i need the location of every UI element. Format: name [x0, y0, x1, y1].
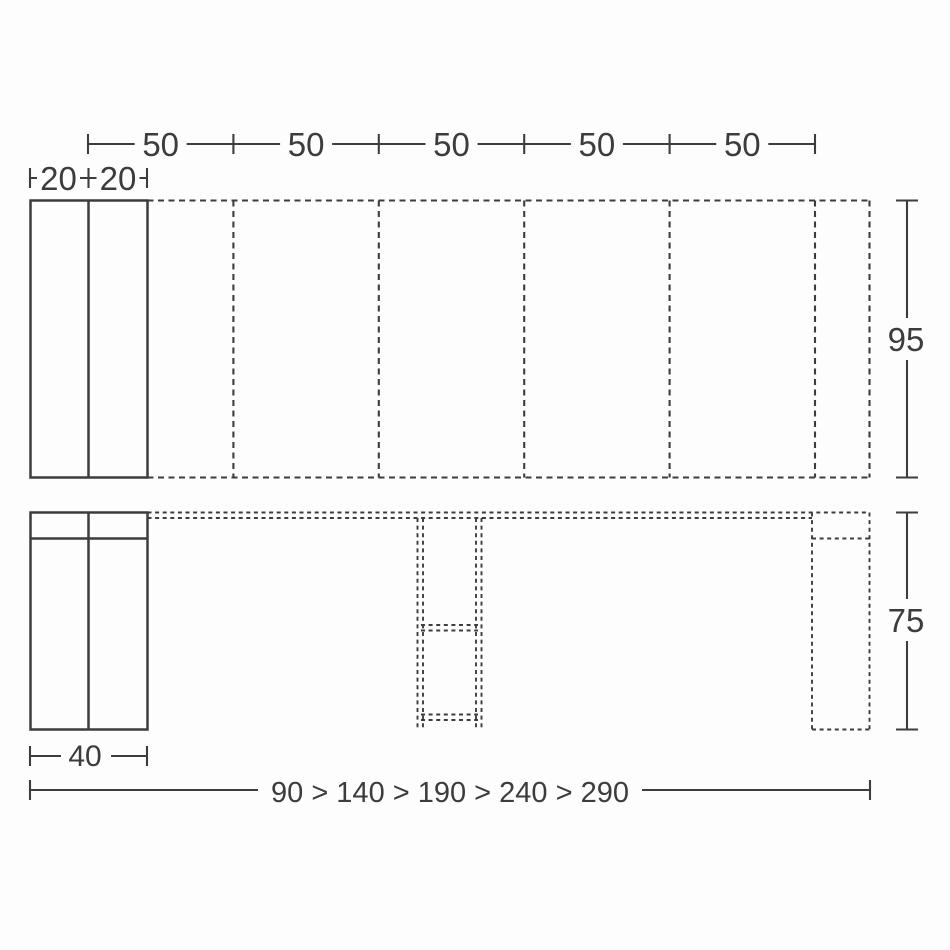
depth-label: 95: [888, 321, 925, 358]
top-view: [31, 201, 870, 478]
base-width-dimension: 40: [30, 740, 147, 773]
leaf-width-label: 50: [579, 126, 616, 163]
dimension-diagram-page: 50 50 50 50 50 20 20 95 75 40: [0, 0, 950, 950]
front-view: [31, 513, 870, 731]
length-sequence-label: 90 > 140 > 190 > 240 > 290: [271, 777, 629, 809]
length-sequence-dimension: 90 > 140 > 190 > 240 > 290: [30, 773, 870, 809]
leaf-width-label: 50: [433, 126, 470, 163]
panel-width-label: 20: [40, 160, 77, 197]
front-right-leg: [812, 513, 870, 730]
depth-dimension: 95: [882, 201, 932, 478]
height-label: 75: [888, 602, 925, 639]
leaf-width-label: 50: [288, 126, 325, 163]
base-width-label: 40: [68, 740, 101, 773]
leaf-width-label: 50: [724, 126, 761, 163]
panel-width-label: 20: [100, 160, 137, 197]
front-mid-leg: [418, 518, 482, 731]
height-dimension: 75: [882, 513, 932, 730]
leaf-width-dimension-row: 50 50 50 50 50: [88, 126, 815, 163]
extendable-table-dimension-diagram: 50 50 50 50 50 20 20 95 75 40: [0, 0, 950, 950]
leaf-width-label: 50: [142, 126, 179, 163]
panel-width-dimension-row: 20 20: [30, 160, 147, 197]
